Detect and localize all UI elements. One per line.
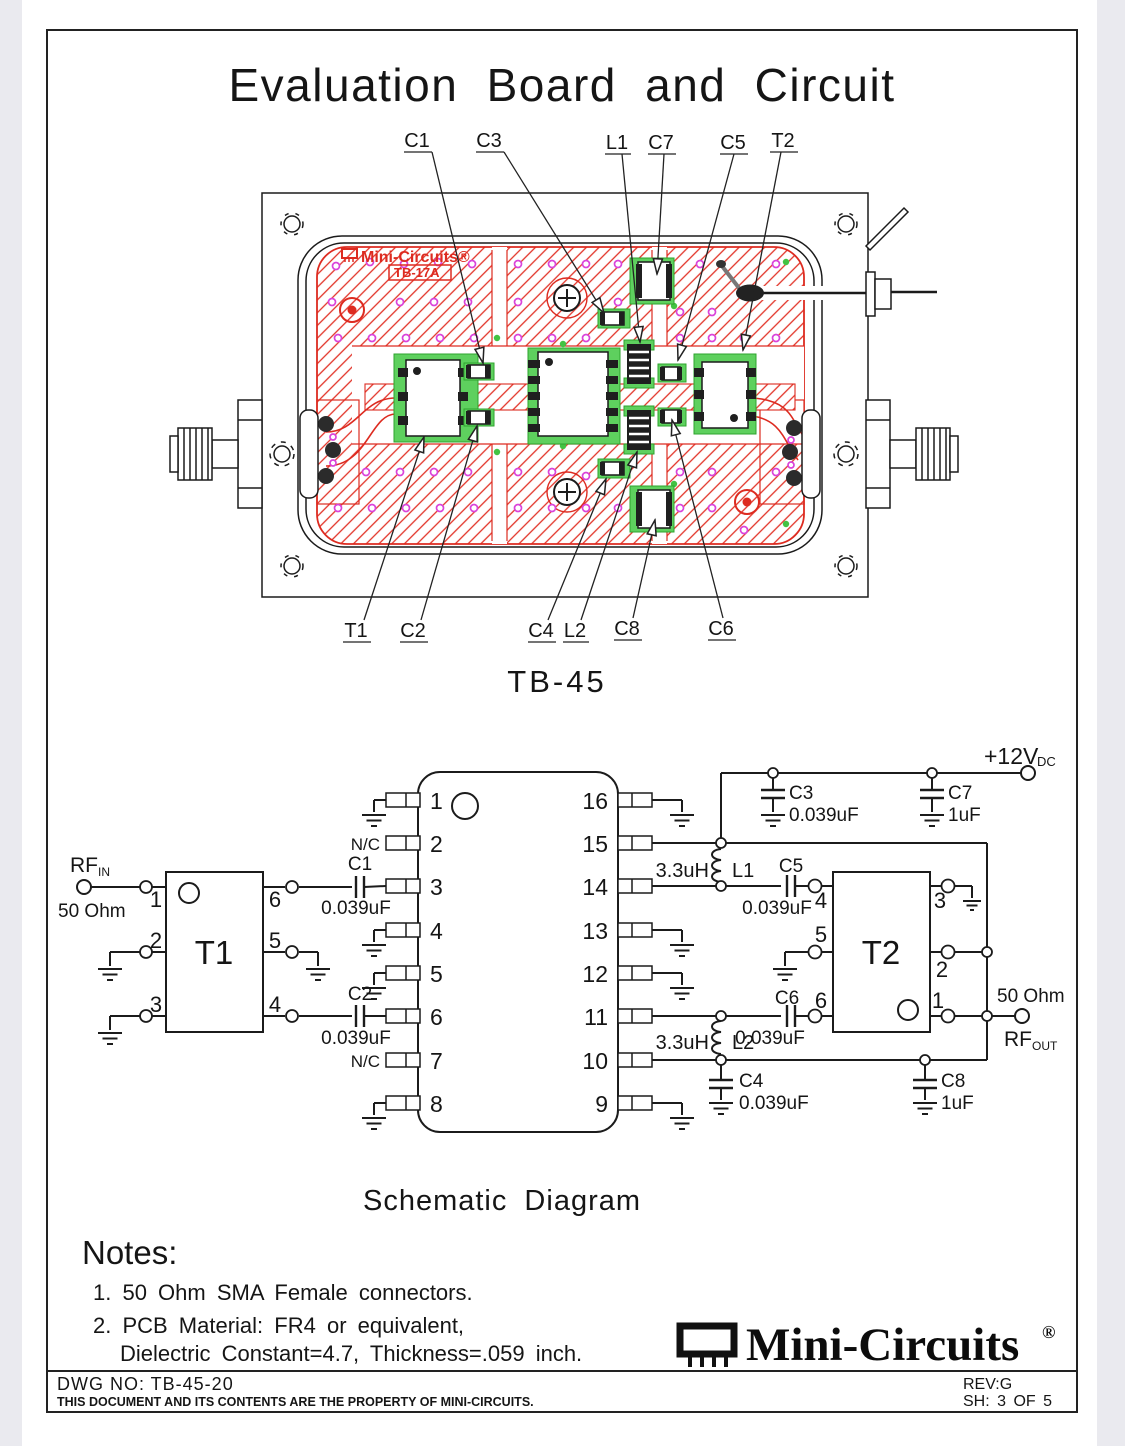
- callout-label: T1: [344, 620, 367, 642]
- sheet-svg: Evaluation Board and Circuit: [0, 0, 1125, 1446]
- t1-pin: 2: [150, 928, 162, 953]
- ic-pin: 7: [430, 1048, 443, 1074]
- nc-label-pin2: N/C: [351, 835, 380, 854]
- ic-pin: 4: [430, 918, 443, 944]
- ic-pin: 6: [430, 1004, 443, 1030]
- t1-pin: 3: [150, 992, 162, 1017]
- c8-value: 1uF: [941, 1093, 974, 1114]
- l2-value: 3.3uH: [656, 1032, 709, 1054]
- rf-out-terminal: [1015, 1009, 1029, 1023]
- c6-value: 0.039uF: [735, 1028, 805, 1049]
- ic-pin: 12: [582, 961, 608, 987]
- ic-pin: 10: [582, 1048, 608, 1074]
- ic-pin: 2: [430, 831, 443, 857]
- ic-pin: 8: [430, 1091, 443, 1117]
- t2-pin: 1: [932, 988, 944, 1013]
- c4-ref: C4: [739, 1071, 764, 1092]
- c7-value: 1uF: [948, 805, 981, 826]
- supply-sub: DC: [1037, 754, 1056, 769]
- brand-reg: ®: [1042, 1322, 1055, 1342]
- supply-label: +12V: [984, 743, 1039, 769]
- dwg-number: DWG NO: TB-45-20: [57, 1374, 234, 1394]
- amplifier-ic-component: [528, 348, 620, 444]
- t2-dot: [898, 1000, 918, 1020]
- rf-out-impedance: 50 Ohm: [997, 986, 1065, 1007]
- callout-label: C1: [404, 130, 430, 152]
- c2-value: 0.039uF: [321, 1028, 391, 1049]
- callout-label: C5: [720, 132, 746, 154]
- inductor-l1-component: [624, 340, 654, 388]
- pcb: Mini-Circuits® TB-17A: [317, 247, 866, 544]
- amplifier-ic-body: [418, 772, 618, 1132]
- c3-value: 0.039uF: [789, 805, 859, 826]
- c4-value: 0.039uF: [739, 1093, 809, 1114]
- rf-in-label: RF: [70, 854, 98, 877]
- brand-name: Mini-Circuits: [746, 1319, 1019, 1371]
- t1-pin: 6: [269, 887, 281, 912]
- l1-value: 3.3uH: [656, 860, 709, 882]
- note-1: 1. 50 Ohm SMA Female connectors.: [93, 1280, 473, 1305]
- c1-value: 0.039uF: [321, 898, 391, 919]
- silkscreen-brand: Mini-Circuits®: [361, 249, 470, 266]
- t2-pin: 3: [934, 888, 946, 913]
- callout-label: C4: [528, 620, 554, 642]
- l1-ref: L1: [732, 860, 754, 882]
- rf-in-terminal: [77, 880, 91, 894]
- property-notice: THIS DOCUMENT AND ITS CONTENTS ARE THE P…: [57, 1395, 534, 1409]
- page-title: Evaluation Board and Circuit: [229, 59, 896, 111]
- c8-ref: C8: [941, 1071, 965, 1092]
- nc-label-pin7: N/C: [351, 1052, 380, 1071]
- callout-label: C2: [400, 620, 426, 642]
- callout-label: C8: [614, 618, 640, 640]
- rf-in-impedance: 50 Ohm: [58, 901, 126, 922]
- callout-label: L1: [606, 132, 628, 154]
- rf-out-sub: OUT: [1032, 1039, 1058, 1053]
- c5-ref: C5: [779, 856, 803, 877]
- t2-pin: 6: [815, 988, 827, 1013]
- callout-label: T2: [771, 130, 794, 152]
- ic-pin: 13: [582, 918, 608, 944]
- rf-in-sub: IN: [98, 865, 110, 879]
- revision: REV:G: [963, 1376, 1012, 1393]
- board-caption: TB-45: [507, 664, 606, 699]
- callout-label: C3: [476, 130, 502, 152]
- page-left-margin: [0, 0, 22, 1446]
- ic-pin: 5: [430, 961, 443, 987]
- ic-pin: 3: [430, 874, 443, 900]
- t1-pin: 5: [269, 928, 281, 953]
- ic-pin: 14: [582, 874, 608, 900]
- note-2-continued: Dielectric Constant=4.7, Thickness=.059 …: [120, 1341, 582, 1366]
- c3-ref: C3: [789, 783, 813, 804]
- silkscreen-model: TB-17A: [394, 265, 440, 280]
- notes-heading: Notes:: [82, 1234, 177, 1271]
- t2-pin: 5: [815, 922, 827, 947]
- c1-ref: C1: [348, 854, 372, 875]
- board-drawing: Mini-Circuits® TB-17A: [170, 130, 958, 642]
- callout-label: C7: [648, 132, 674, 154]
- c2-ref: C2: [348, 984, 372, 1005]
- c5-value: 0.039uF: [742, 898, 812, 919]
- t1-dot: [179, 883, 199, 903]
- amplifier-pin1-dot: [452, 793, 478, 819]
- c7-ref: C7: [948, 783, 972, 804]
- ic-pin: 1: [430, 788, 443, 814]
- callout-label: C6: [708, 618, 734, 640]
- schematic-caption: Schematic Diagram: [363, 1185, 641, 1217]
- inductor-l2-component: [624, 406, 654, 454]
- ic-pin: 11: [584, 1004, 608, 1030]
- transformer-t2-component: [694, 354, 756, 434]
- note-2: 2. PCB Material: FR4 or equivalent,: [93, 1313, 464, 1338]
- page-right-margin: [1097, 0, 1125, 1446]
- ic-pin: 15: [582, 831, 608, 857]
- sheet-number: SH: 3 OF 5: [963, 1393, 1052, 1410]
- rf-out-label: RF: [1004, 1028, 1032, 1051]
- callout-label: L2: [564, 620, 586, 642]
- t2-pin: 2: [936, 957, 948, 982]
- c6-ref: C6: [775, 988, 799, 1009]
- t2-ref: T2: [862, 934, 901, 971]
- drawing-sheet: Evaluation Board and Circuit: [0, 0, 1125, 1446]
- ic-pin: 16: [582, 788, 608, 814]
- t1-pin: 4: [269, 992, 281, 1017]
- t2-pin: 4: [815, 888, 827, 913]
- t1-ref: T1: [195, 934, 234, 971]
- ic-pin: 9: [595, 1091, 608, 1117]
- t1-pin: 1: [150, 887, 162, 912]
